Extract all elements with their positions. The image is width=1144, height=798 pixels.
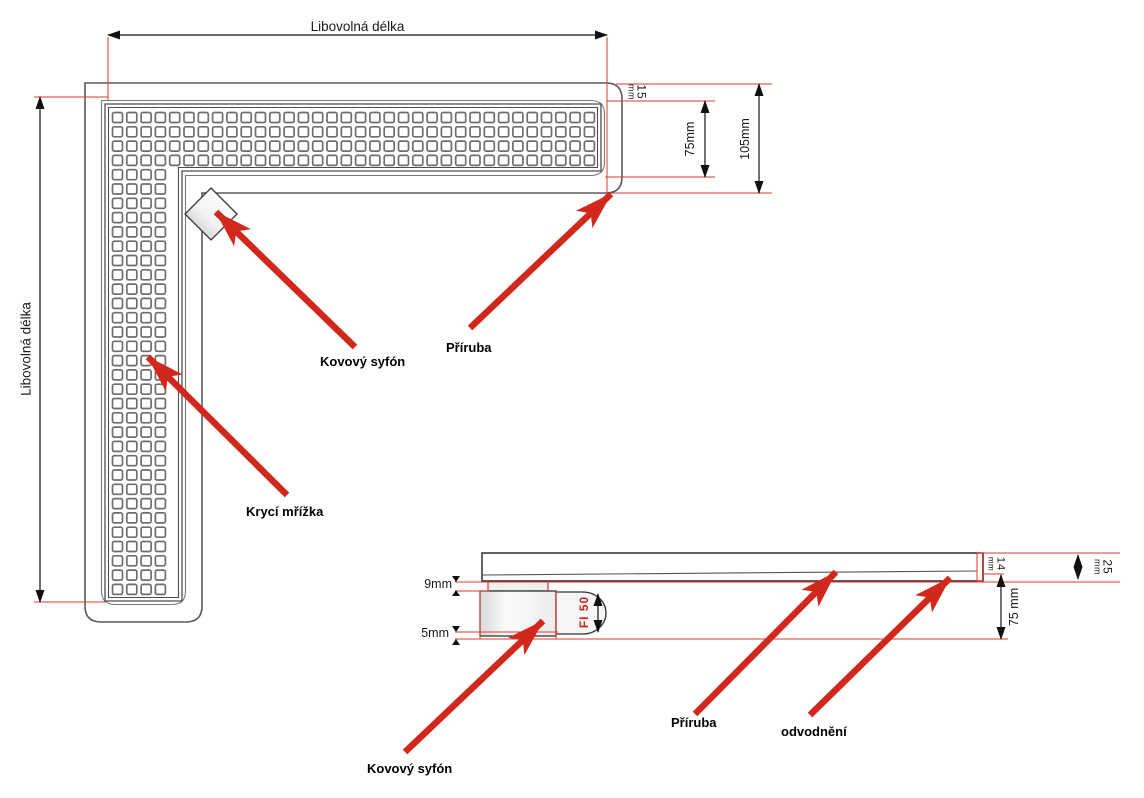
annotation-arrows	[148, 194, 950, 752]
technical-drawing-canvas: Libovolná délka Libovolná délka 15 mm 75…	[0, 0, 1144, 798]
side-channel-body	[482, 553, 983, 581]
plan-view	[85, 83, 622, 622]
side-flange-label: Příruba	[671, 715, 717, 730]
side-siphon-label: Kovový syfón	[367, 761, 452, 776]
side-pipe-diameter-fi50: FI 50	[577, 596, 591, 628]
arrow-side-flange	[695, 572, 836, 714]
drawing-linework	[0, 0, 1144, 798]
arrow-side-siphon	[405, 621, 543, 752]
plan-siphon-label: Kovový syfón	[320, 354, 405, 369]
side-height-dim-25mm: 25 mm	[1093, 559, 1114, 575]
arrow-plan-flange	[470, 194, 611, 328]
side-siphon-box	[480, 591, 556, 636]
side-drain-label: odvodnění	[781, 724, 847, 739]
plan-grate-width-dim-75mm: 75mm	[683, 122, 697, 157]
plan-flange-label: Příruba	[446, 340, 492, 355]
plan-flange-dim-15mm: 15 mm	[627, 84, 648, 100]
side-lip-dim-5mm: 5mm	[409, 626, 449, 640]
side-view	[480, 553, 984, 639]
plan-length-top-label: Libovolná délka	[0, 19, 715, 34]
side-small-dim-ticks	[452, 576, 460, 645]
side-depth-dim-75mm: 75 mm	[1007, 588, 1021, 626]
side-neck-dim-9mm: 9mm	[412, 577, 452, 591]
arrow-side-drain	[810, 578, 950, 715]
side-end-dim-14mm: 14 mm	[987, 557, 1006, 571]
arrow-plan-siphon	[216, 212, 355, 347]
plan-total-width-dim-105mm: 105mm	[738, 118, 752, 160]
plan-grate-label: Krycí mřížka	[246, 504, 323, 519]
plan-length-left-label: Libovolná délka	[19, 302, 34, 396]
